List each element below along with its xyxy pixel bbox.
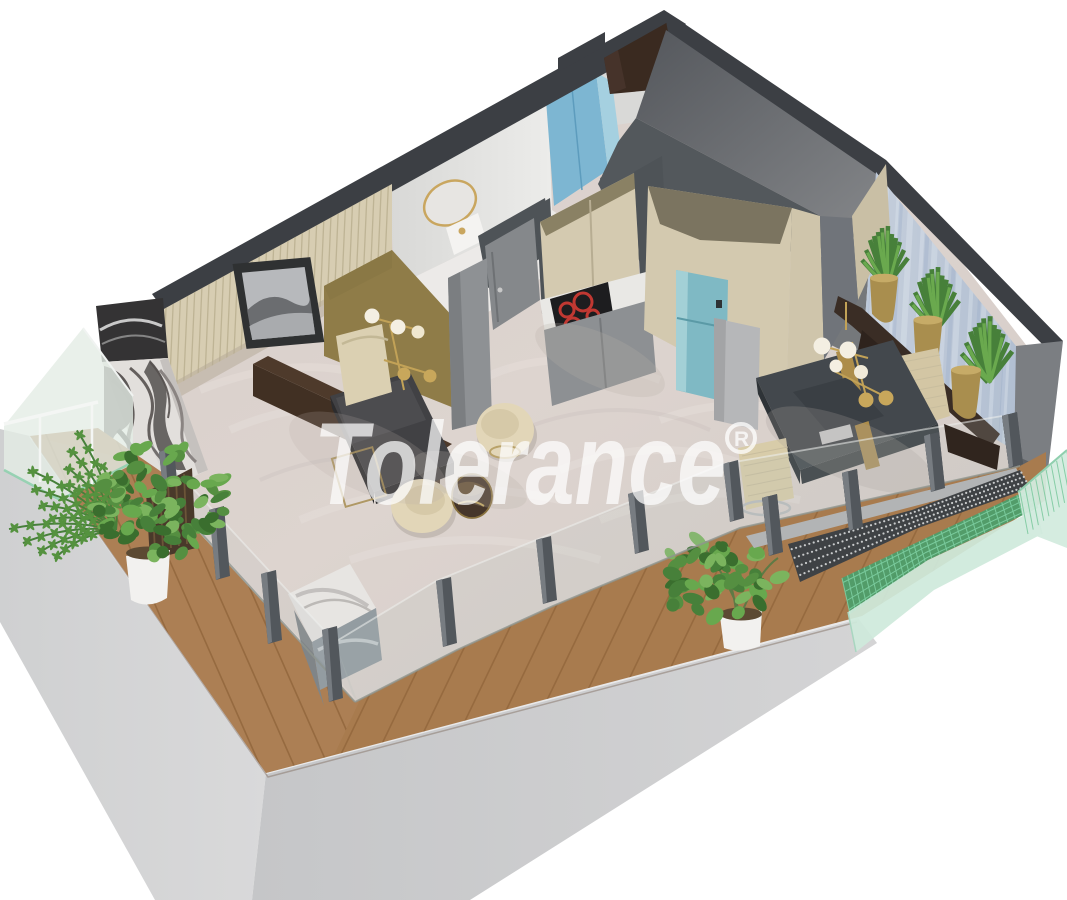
svg-text:R: R xyxy=(734,428,749,451)
svg-text:Tolerance: Tolerance xyxy=(314,398,726,529)
